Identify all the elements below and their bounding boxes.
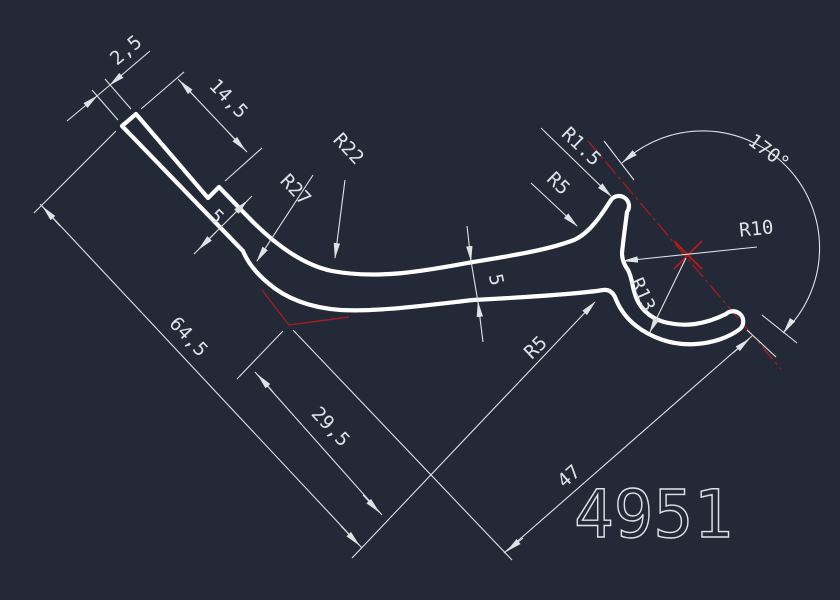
radius-text-outer-bend: R27	[276, 170, 316, 210]
leader-branch-fillet-r5: R5	[531, 168, 577, 226]
dimension-step-thickness: 5	[194, 196, 252, 254]
dim-text-band-thickness: 5	[484, 272, 508, 288]
dim-text-overall-length: 64,5	[165, 313, 212, 361]
leader-inner-bend-r22: R22	[329, 129, 369, 258]
cad-canvas: 2,5 14,5 5 5 64,5 29,5	[0, 0, 840, 600]
dim-text-tip-angle: 170°	[744, 130, 794, 175]
radius-text-hook-fillet: R5	[520, 332, 552, 364]
radius-text-inner-bend: R22	[329, 129, 369, 169]
leader-outer-bend-r27: R27	[257, 170, 315, 261]
dimension-cap-width: 2,5	[67, 31, 150, 121]
dimension-band-thickness: 5	[467, 226, 508, 342]
dim-text-cap-width: 2,5	[106, 31, 146, 70]
dimension-mid-length: 29,5	[237, 331, 382, 515]
leader-hook-center-r10: R10	[623, 216, 775, 261]
cad-viewport: 2,5 14,5 5 5 64,5 29,5	[0, 0, 840, 600]
dim-text-tab-length: 14,5	[205, 75, 253, 123]
radius-text-branch-fillet: R5	[542, 168, 574, 200]
radius-text-hook-center: R10	[738, 216, 774, 241]
leader-hook-inner-r13: R13	[625, 258, 686, 332]
radius-text-branch-tip: R1.5	[557, 123, 605, 171]
radius-text-hook-inner: R13	[625, 274, 659, 314]
part-number: 4951	[574, 476, 733, 553]
dimension-tip-angle: 170°	[604, 130, 820, 343]
dim-text-mid-length: 29,5	[307, 403, 354, 451]
